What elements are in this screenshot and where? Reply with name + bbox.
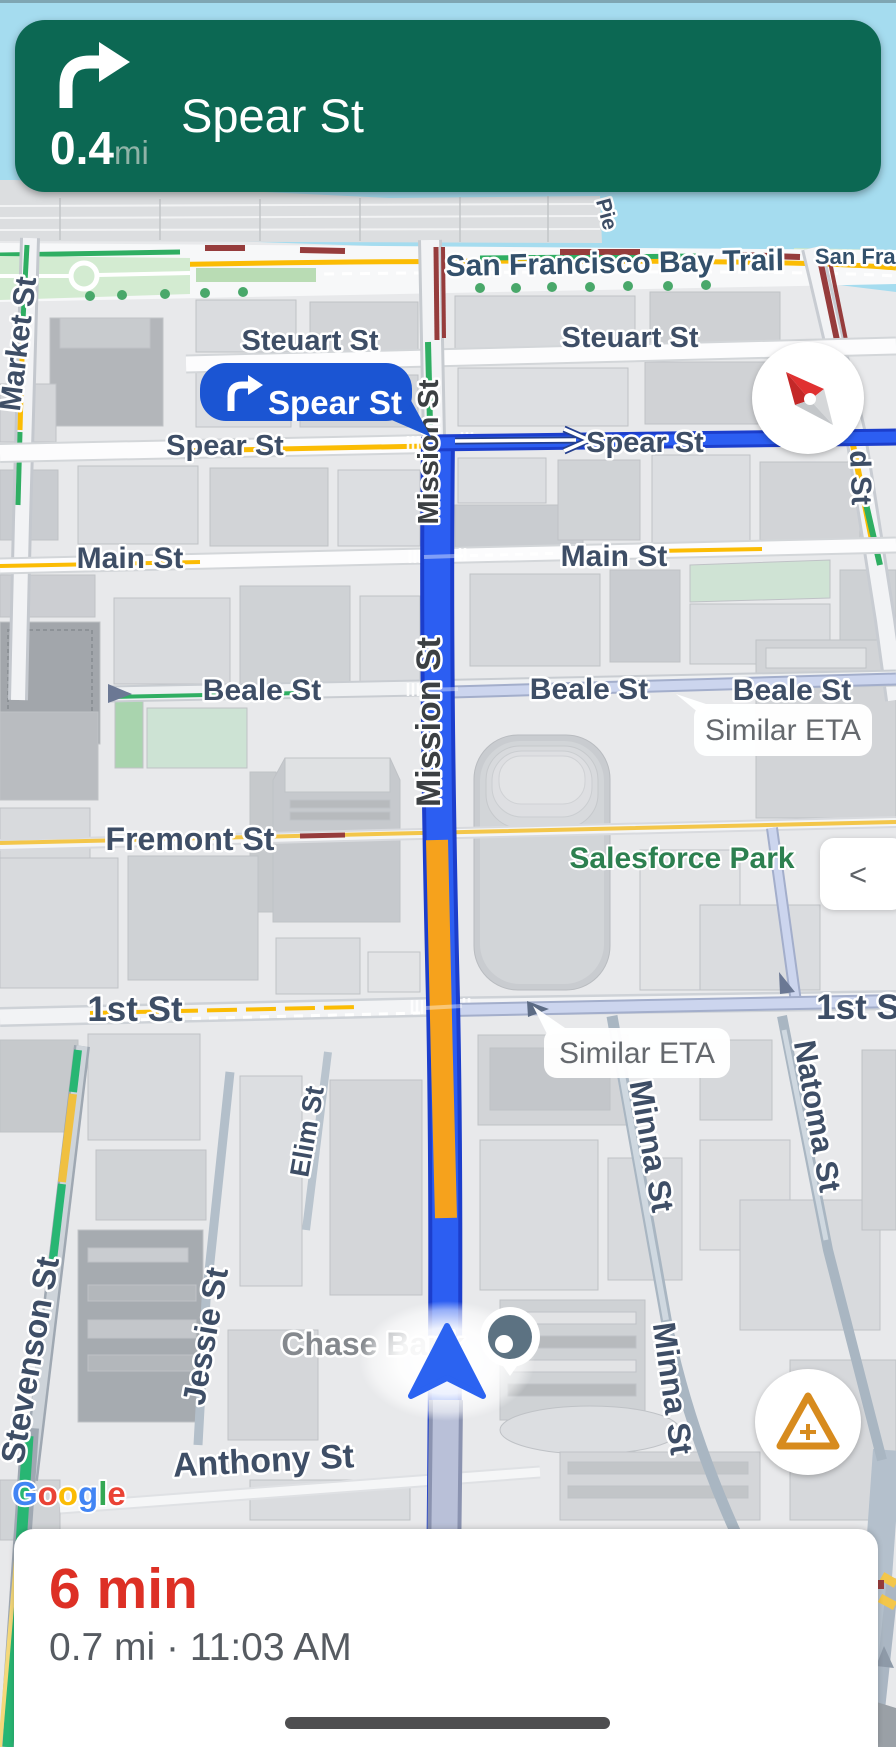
svg-text:1st St: 1st St bbox=[87, 990, 183, 1029]
svg-text:Main St: Main St bbox=[77, 542, 184, 575]
svg-text:Main St: Main St bbox=[561, 540, 668, 573]
svg-text:1st S: 1st S bbox=[816, 988, 896, 1027]
svg-text:Spear St: Spear St bbox=[586, 427, 704, 459]
svg-text:Steuart St: Steuart St bbox=[562, 322, 699, 354]
svg-text:Beale St: Beale St bbox=[203, 674, 321, 707]
svg-text:Steuart St: Steuart St bbox=[242, 325, 379, 357]
svg-text:Spear St: Spear St bbox=[166, 430, 284, 462]
svg-text:San Fran: San Fran bbox=[815, 244, 896, 269]
svg-text:Beale St: Beale St bbox=[530, 673, 648, 706]
svg-text:Similar ETA: Similar ETA bbox=[705, 714, 861, 747]
svg-text:Beale St: Beale St bbox=[733, 674, 851, 707]
svg-text:Google: Google bbox=[12, 1475, 126, 1512]
svg-text:San Francisco Bay Trail: San Francisco Bay Trail bbox=[445, 244, 784, 283]
svg-text:Mission St: Mission St bbox=[413, 379, 445, 524]
svg-text:Spear St: Spear St bbox=[268, 384, 402, 421]
svg-text:<: < bbox=[849, 857, 867, 892]
svg-text:Fremont St: Fremont St bbox=[106, 821, 275, 857]
svg-text:d St: d St bbox=[843, 450, 877, 506]
svg-text:Similar ETA: Similar ETA bbox=[559, 1037, 715, 1070]
svg-text:Salesforce Park: Salesforce Park bbox=[569, 842, 794, 875]
svg-text:Mission St: Mission St bbox=[410, 637, 448, 807]
